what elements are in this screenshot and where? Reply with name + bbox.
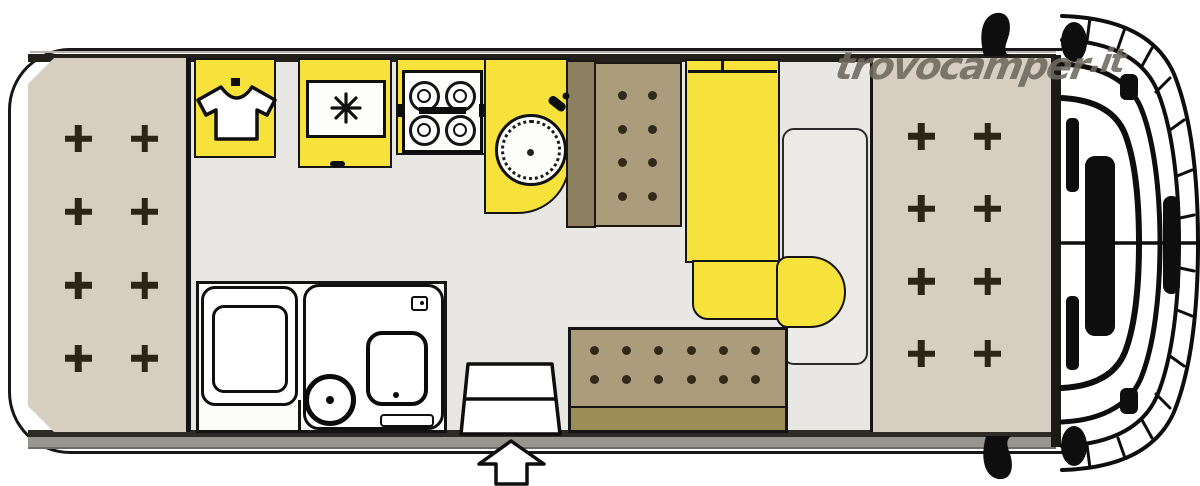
dot-mark [590, 375, 599, 384]
dot-mark [648, 192, 657, 201]
burner-mark [409, 115, 440, 146]
cross-mark [908, 195, 935, 222]
wardrobe [194, 58, 276, 158]
dot-mark [654, 346, 663, 355]
dinette-table [782, 128, 868, 365]
dot-mark [618, 91, 627, 100]
dinette-seat-dot-grid [607, 79, 667, 213]
shower-tray-inner [212, 305, 288, 393]
dot-mark [622, 375, 631, 384]
cross-mark [131, 345, 158, 372]
side-bench-dot-grid [578, 336, 772, 394]
dinette-seat-backrest [566, 60, 596, 228]
dot-mark [687, 375, 696, 384]
cross-mark [974, 195, 1001, 222]
wall-bottom-gray-strip [28, 437, 1056, 449]
dot-mark [648, 158, 657, 167]
dot-mark [648, 91, 657, 100]
sofa-corner-section [692, 260, 780, 320]
rear-bed-partition-wall [186, 58, 191, 432]
side-bench-backrest [571, 406, 785, 430]
bathroom-divider-wall [298, 400, 301, 432]
cross-mark [974, 123, 1001, 150]
burner-mark [445, 115, 476, 146]
cross-mark [908, 123, 935, 150]
sofa-seam-horizontal [688, 70, 777, 73]
cross-mark [974, 268, 1001, 295]
stove-grate-bar [419, 107, 466, 114]
watermark-tld: .it [1087, 41, 1128, 80]
dot-mark [622, 346, 631, 355]
dot-mark [654, 375, 663, 384]
sofa-armrest [776, 256, 846, 328]
dot-mark [751, 346, 760, 355]
dot-mark [618, 192, 627, 201]
floorplan-canvas: trovocamper.it [0, 0, 1200, 486]
cross-mark [131, 125, 158, 152]
cross-mark [908, 340, 935, 367]
sink-drain [527, 149, 534, 156]
refrigerator-handle [330, 161, 345, 167]
washbasin-drain [326, 396, 334, 404]
cross-mark [65, 125, 92, 152]
rear-bed-cross-grid [45, 102, 178, 395]
sofa-seam-vertical [721, 59, 724, 71]
cross-mark [131, 272, 158, 299]
cross-mark [131, 198, 158, 225]
dot-mark [751, 375, 760, 384]
dot-mark [719, 346, 728, 355]
dot-mark [719, 375, 728, 384]
cross-mark [65, 345, 92, 372]
sofa-longitudinal [685, 59, 780, 263]
dot-mark [590, 346, 599, 355]
refrigerator-door [306, 80, 386, 138]
cross-mark [65, 272, 92, 299]
front-bed-cross-grid [888, 100, 1021, 390]
watermark-site: trovocamper [832, 44, 1091, 88]
bathroom-threshold [380, 414, 434, 427]
cross-mark [908, 268, 935, 295]
dot-mark [687, 346, 696, 355]
cross-mark [65, 198, 92, 225]
dot-mark [648, 125, 657, 134]
watermark: trovocamper.it [832, 44, 1127, 88]
dot-mark [618, 125, 627, 134]
bathroom-cabinet-knob [420, 301, 424, 305]
cross-mark [974, 340, 1001, 367]
cab-bulkhead-wall [1051, 55, 1061, 447]
dot-mark [618, 158, 627, 167]
toilet-flush-dot [393, 392, 399, 398]
stove-left-tab [398, 104, 404, 117]
